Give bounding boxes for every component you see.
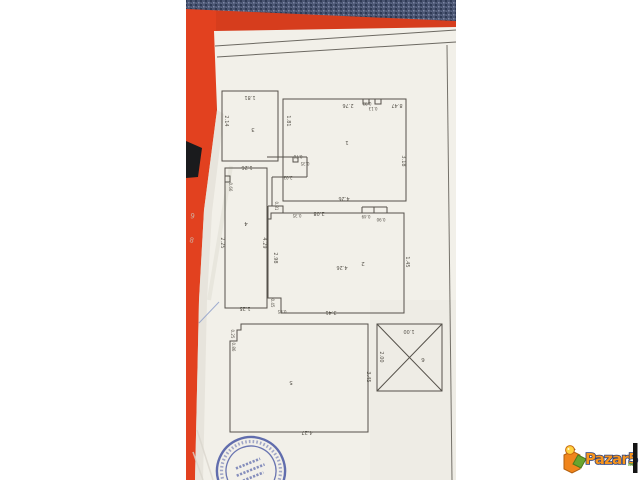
- paper-shadow-lower-right: [370, 300, 456, 480]
- dimension-label: 3.45: [365, 371, 371, 382]
- dimension-label: 2.03: [283, 175, 292, 180]
- watermark-bar: [633, 443, 638, 473]
- room-number: 3: [251, 126, 255, 132]
- dimension-label: 0.81: [274, 202, 279, 211]
- dimension-label: 2.14: [223, 115, 229, 126]
- dimension-label: 0.33: [362, 101, 371, 106]
- dimension-label: 3.18: [400, 155, 406, 166]
- dimension-label: 2.98: [272, 252, 278, 263]
- highlight-dot: [568, 448, 570, 450]
- dimension-label: 0.66: [228, 183, 233, 192]
- listing-photo-canvas: 9 8: [0, 0, 640, 480]
- dimension-label: 2.76: [342, 102, 353, 108]
- dimension-label: 0.45: [270, 299, 275, 308]
- dimension-label: 1.81: [285, 115, 291, 126]
- smiley-face: [566, 446, 575, 455]
- dimension-label: 4.29: [261, 237, 267, 248]
- room-number: 4: [244, 220, 248, 226]
- dimension-label: 1.45: [404, 256, 410, 267]
- dimension-label: 1.26: [241, 164, 252, 170]
- dimension-label: 1.00: [403, 328, 414, 334]
- photo-region: 9 8: [186, 0, 456, 480]
- dimension-label: 0.85: [277, 309, 286, 314]
- dimension-label: 0.86: [231, 343, 236, 352]
- dimension-label: 4.27: [301, 429, 312, 435]
- room-number: 6: [421, 356, 425, 362]
- room-number: 2: [361, 260, 365, 266]
- dimension-label: 1.25: [239, 305, 250, 311]
- dimension-label: 2.00: [378, 351, 384, 362]
- dimension-label: 0.13: [368, 106, 377, 111]
- dimension-label: 0.35: [292, 213, 301, 218]
- photo-scene: 9 8: [0, 0, 640, 480]
- dimension-label: 3.41: [325, 309, 336, 315]
- dimension-label: 0.35: [300, 161, 309, 166]
- dimension-label: 2.08: [313, 210, 324, 216]
- dimension-label: 0.70: [293, 154, 302, 159]
- dimension-label: 4.26: [336, 264, 347, 270]
- room-number: 1: [345, 139, 349, 145]
- room-number: 5: [289, 379, 293, 385]
- dimension-label: 0.25: [230, 330, 235, 339]
- dimension-label: 1.81: [244, 94, 255, 100]
- dimension-label: 4.26: [338, 195, 349, 201]
- dimension-label: 2.25: [219, 237, 225, 248]
- dimension-label: 8.47: [391, 102, 402, 108]
- dimension-label: 0.49: [361, 214, 370, 219]
- dimension-label: 0.90: [376, 217, 385, 222]
